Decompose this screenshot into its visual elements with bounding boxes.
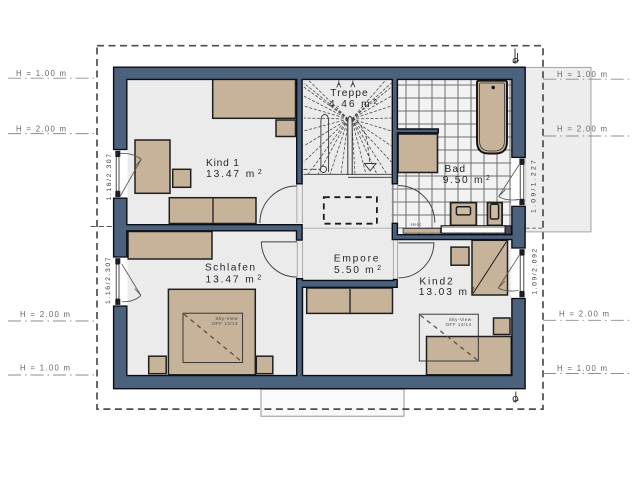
svg-text:Bad: Bad — [445, 164, 467, 175]
svg-text:H = 2.00 m: H = 2.00 m — [20, 310, 71, 319]
svg-text:1.16/2.307: 1.16/2.307 — [106, 152, 113, 200]
svg-text:13.03 m2: 13.03 m2 — [419, 287, 477, 298]
svg-text:Schlafen: Schlafen — [205, 262, 257, 273]
svg-text:OFF 13/14: OFF 13/14 — [212, 321, 238, 326]
svg-text:1.09/1.227: 1.09/1.227 — [530, 158, 537, 213]
svg-text:Sky-View: Sky-View — [215, 316, 238, 321]
svg-text:Kind 1: Kind 1 — [206, 158, 240, 169]
svg-text:HHK: HHK — [411, 222, 423, 228]
svg-text:H = 2.00 m: H = 2.00 m — [559, 310, 610, 319]
svg-text:H = 2.00 m: H = 2.00 m — [16, 125, 67, 134]
svg-text:Treppe: Treppe — [330, 88, 369, 99]
svg-text:H = 1.00 m: H = 1.00 m — [16, 69, 67, 78]
svg-text:Empore: Empore — [334, 254, 380, 265]
svg-text:OFF 13/14: OFF 13/14 — [445, 322, 471, 327]
svg-text:13.47 m2: 13.47 m2 — [206, 169, 264, 180]
svg-text:H = 1.00 m: H = 1.00 m — [20, 364, 71, 373]
svg-text:Sky-View: Sky-View — [449, 317, 472, 322]
svg-text:Kind2: Kind2 — [419, 276, 454, 287]
svg-text:13.47 m2: 13.47 m2 — [206, 274, 264, 285]
svg-text:H = 1.00 m: H = 1.00 m — [557, 364, 608, 373]
svg-text:1.09/2.092: 1.09/2.092 — [531, 247, 538, 294]
svg-text:H = 2.00 m: H = 2.00 m — [557, 125, 608, 134]
svg-text:1.16/2.307: 1.16/2.307 — [105, 256, 112, 304]
svg-text:H = 1.00 m: H = 1.00 m — [557, 70, 608, 79]
